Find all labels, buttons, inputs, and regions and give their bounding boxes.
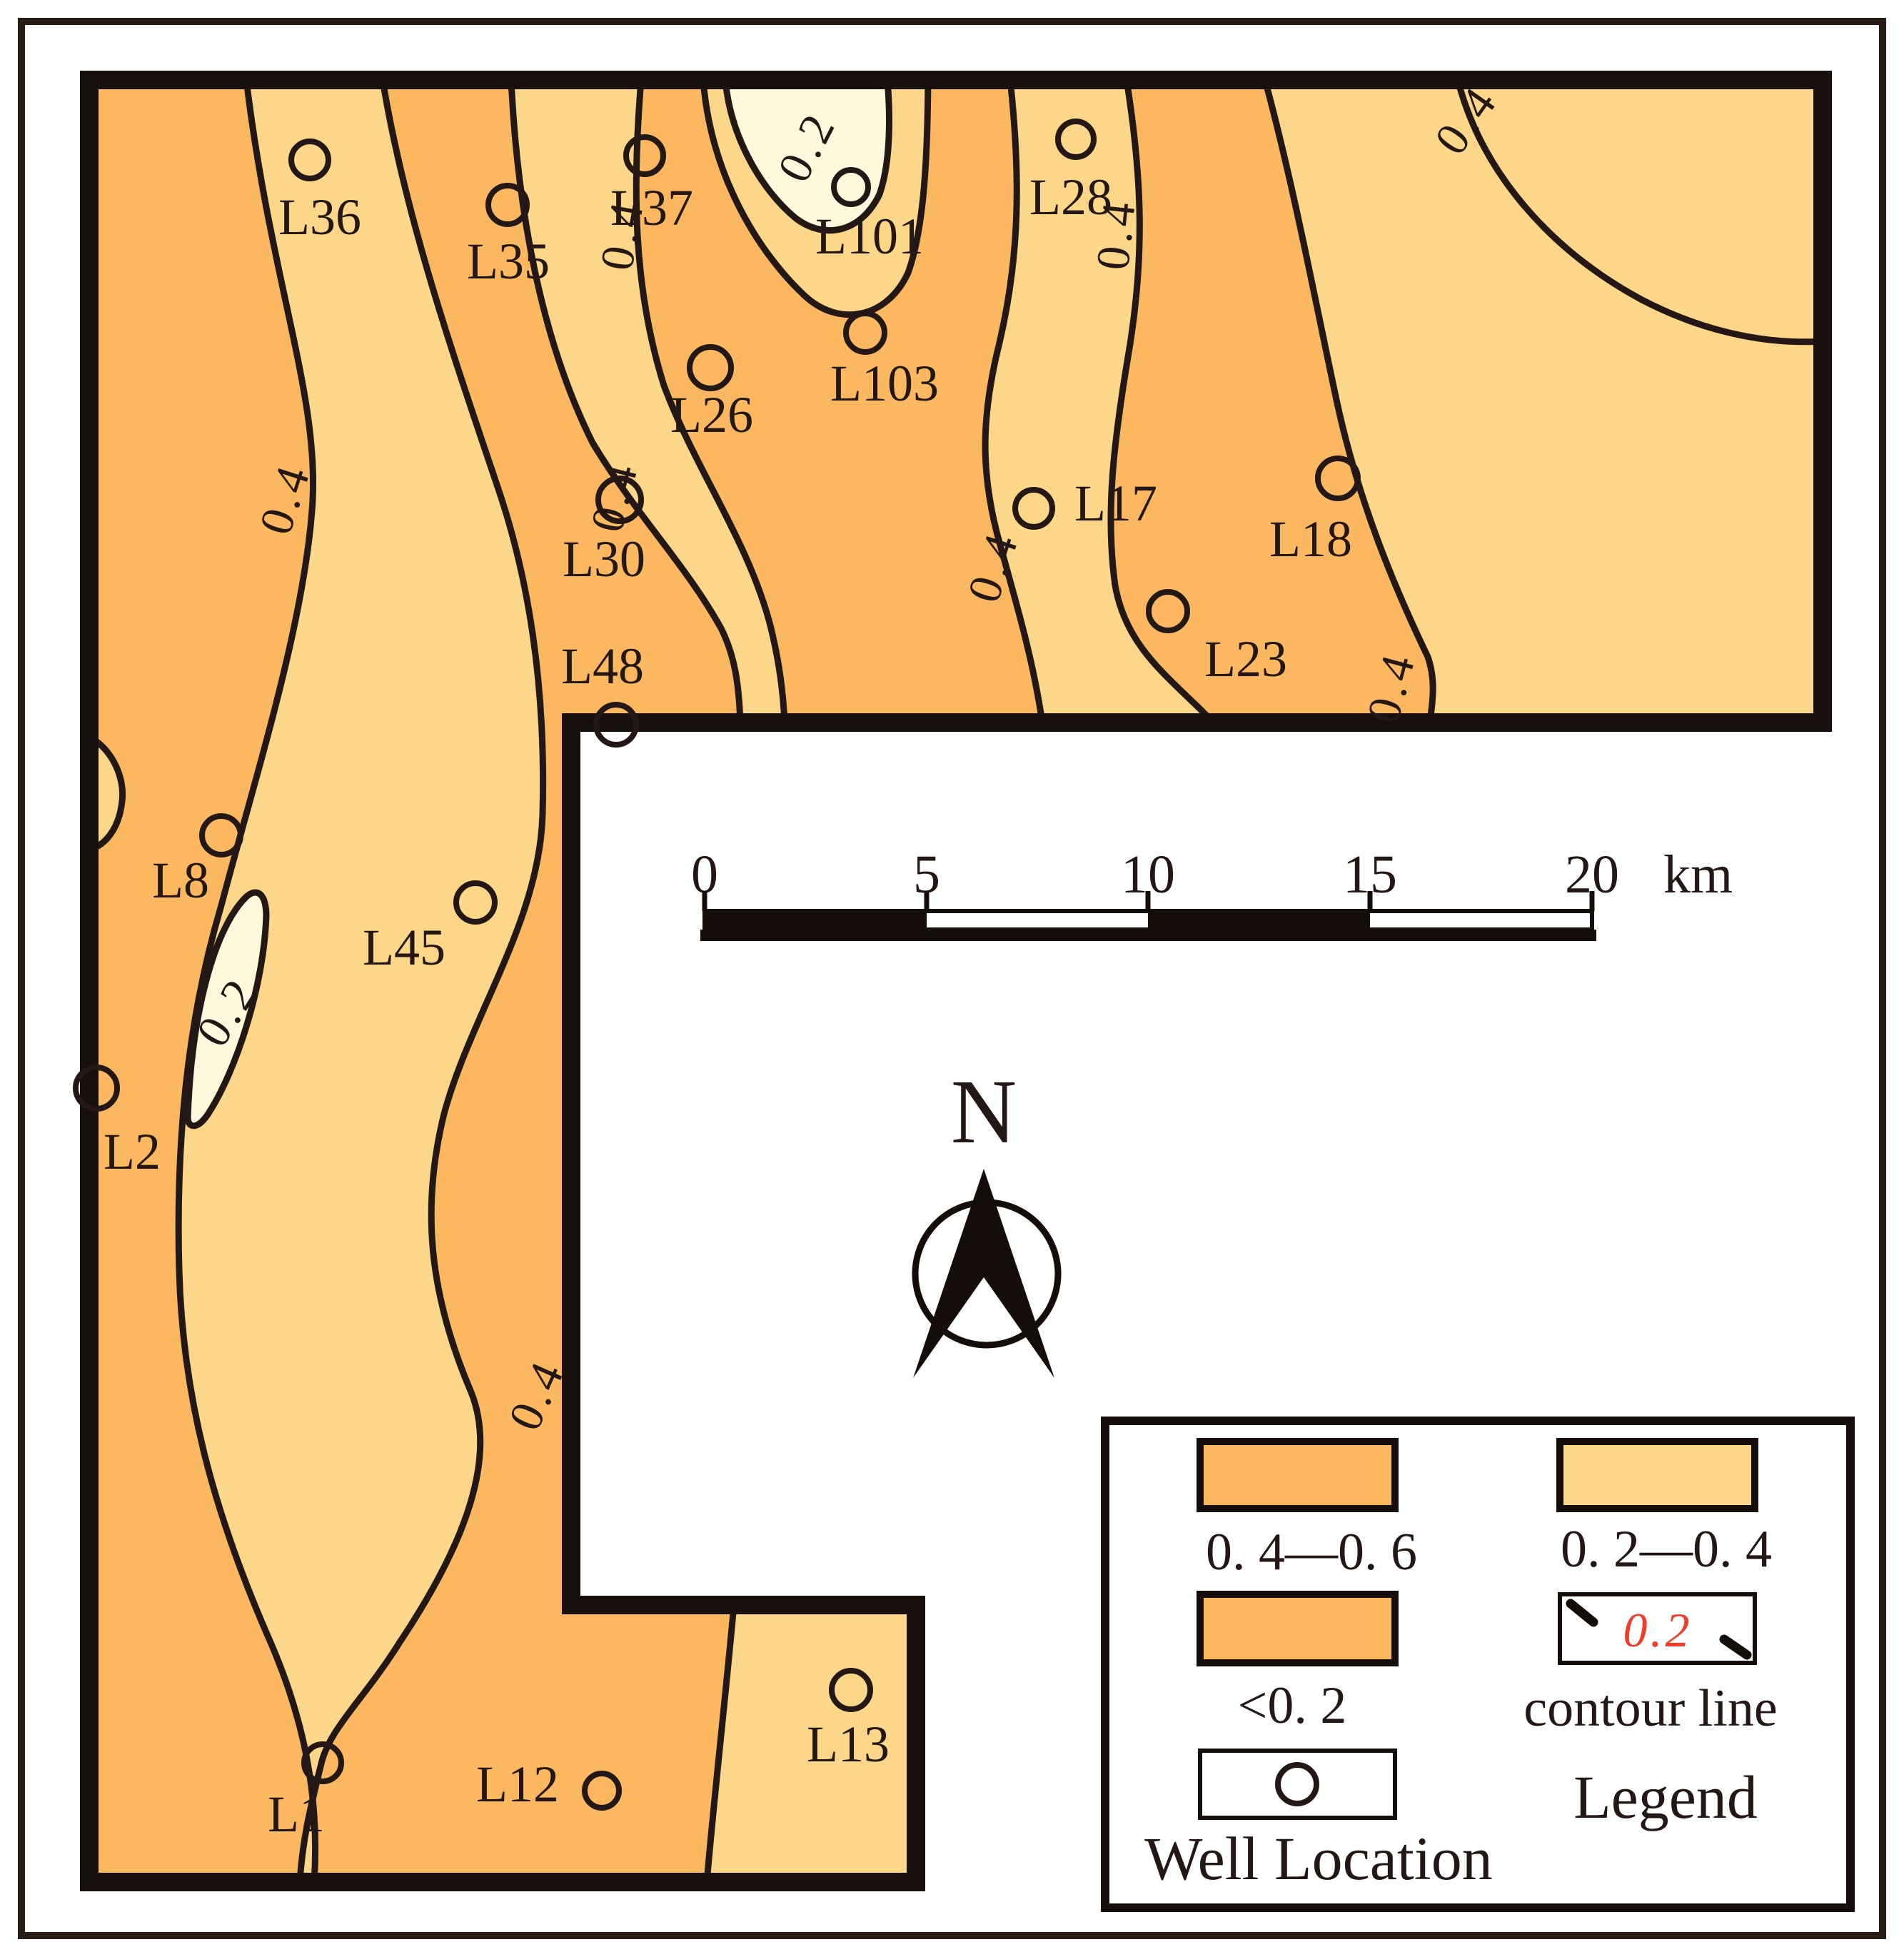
legend-range-label: <0. 2	[1238, 1676, 1347, 1735]
legend-well-sample	[1200, 1751, 1395, 1818]
legend: 0. 4—0. 6 0. 2—0. 4 0.2 <0. 2 contour li…	[1105, 1421, 1850, 1908]
legend-range-label: 0. 2—0. 4	[1561, 1520, 1772, 1579]
well-label: L26	[670, 386, 753, 443]
scale-bar: 0 5 10 15 20 km	[691, 845, 1733, 941]
well-label: L30	[563, 530, 645, 588]
scale-bar-baseline	[700, 930, 1596, 941]
legend-swatch-02-04	[1560, 1442, 1755, 1509]
legend-swatch-below-02	[1200, 1594, 1395, 1663]
well-label: L1	[268, 1786, 325, 1843]
well-label: L8	[152, 852, 209, 909]
north-arrow: N	[913, 1061, 1058, 1378]
well-label: L12	[476, 1756, 559, 1813]
well-label: L17	[1074, 475, 1157, 532]
well-label: L13	[807, 1716, 890, 1773]
legend-item-label: Well Location	[1144, 1824, 1492, 1893]
legend-title: Legend	[1573, 1763, 1758, 1831]
contour-label: 0.4	[1087, 196, 1146, 273]
north-label: N	[951, 1061, 1017, 1162]
well-label: L103	[830, 355, 939, 412]
well-label: L36	[278, 188, 361, 246]
legend-range-label: 0. 4—0. 6	[1206, 1523, 1417, 1581]
well-label: L48	[561, 638, 644, 695]
contour-map-figure: L36 L35 L37 L101 L103 L26 L30 L48 L28 L1…	[0, 0, 1904, 1957]
legend-contour-sample: 0.2	[1560, 1594, 1755, 1663]
legend-contour-sample-value: 0.2	[1623, 1603, 1693, 1657]
figure-page: L36 L35 L37 L101 L103 L26 L30 L48 L28 L1…	[0, 0, 1904, 1957]
well-label: L45	[363, 919, 445, 976]
legend-item-label: contour line	[1523, 1679, 1778, 1738]
scale-bar-segment	[705, 911, 927, 930]
scale-bar-segment	[1148, 911, 1370, 930]
well-label: L23	[1204, 630, 1287, 688]
legend-swatch-04-06	[1200, 1442, 1395, 1509]
well-label: L101	[815, 208, 924, 265]
well-label: L35	[467, 233, 550, 290]
well-label: L2	[104, 1123, 161, 1180]
legend-well-sample-box	[1200, 1751, 1395, 1818]
well-label: L18	[1269, 510, 1352, 568]
scale-unit-label: km	[1663, 845, 1733, 905]
